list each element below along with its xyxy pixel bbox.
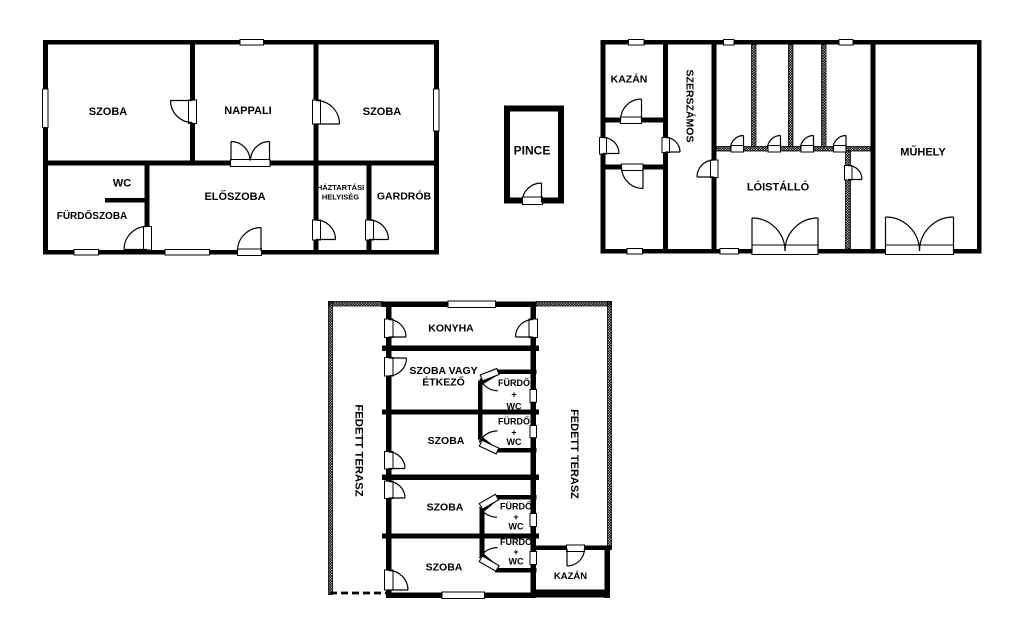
svg-text:SZOBA: SZOBA <box>428 435 465 447</box>
svg-text:HÁZTARTÁSI: HÁZTARTÁSI <box>317 183 364 192</box>
svg-text:+: + <box>511 390 516 400</box>
svg-text:SZOBA: SZOBA <box>89 106 128 118</box>
svg-text:WC: WC <box>509 557 524 567</box>
svg-text:SZERSZÁMOS: SZERSZÁMOS <box>684 70 697 143</box>
svg-text:WC: WC <box>507 402 522 412</box>
svg-text:GARDRÓB: GARDRÓB <box>377 190 432 203</box>
svg-text:NAPPALI: NAPPALI <box>224 105 271 117</box>
svg-text:WC: WC <box>509 522 524 532</box>
svg-text:SZOBA VAGY: SZOBA VAGY <box>409 365 477 377</box>
svg-text:FÜRDŐ: FÜRDŐ <box>498 377 530 388</box>
svg-text:SZOBA: SZOBA <box>363 106 402 118</box>
svg-text:ELŐSZOBA: ELŐSZOBA <box>204 190 265 203</box>
svg-text:+: + <box>513 547 518 557</box>
svg-text:PINCE: PINCE <box>514 144 551 158</box>
svg-text:KAZÁN: KAZÁN <box>611 73 648 86</box>
svg-text:FÜRDŐSZOBA: FÜRDŐSZOBA <box>57 209 128 222</box>
svg-text:WC: WC <box>507 437 522 447</box>
svg-text:FEDETT TERASZ: FEDETT TERASZ <box>568 409 580 499</box>
svg-text:ÉTKEZŐ: ÉTKEZŐ <box>422 376 465 389</box>
svg-text:FÜRDŐ: FÜRDŐ <box>500 501 532 512</box>
svg-text:FÜRDŐ: FÜRDŐ <box>500 536 532 547</box>
svg-text:+: + <box>511 428 516 438</box>
svg-text:KAZÁN: KAZÁN <box>554 571 587 582</box>
svg-text:SZOBA: SZOBA <box>426 562 463 574</box>
svg-text:KONYHA: KONYHA <box>428 323 474 335</box>
svg-text:FÜRDŐ: FÜRDŐ <box>498 416 530 427</box>
svg-text:LÓISTÁLLÓ: LÓISTÁLLÓ <box>747 181 810 194</box>
svg-text:HELYISÉG: HELYISÉG <box>322 193 359 202</box>
svg-text:MŰHELY: MŰHELY <box>900 146 946 159</box>
svg-text:WC: WC <box>113 178 131 190</box>
svg-text:SZOBA: SZOBA <box>427 502 464 514</box>
svg-text:FEDETT TERASZ: FEDETT TERASZ <box>353 404 365 496</box>
svg-text:+: + <box>513 512 518 522</box>
